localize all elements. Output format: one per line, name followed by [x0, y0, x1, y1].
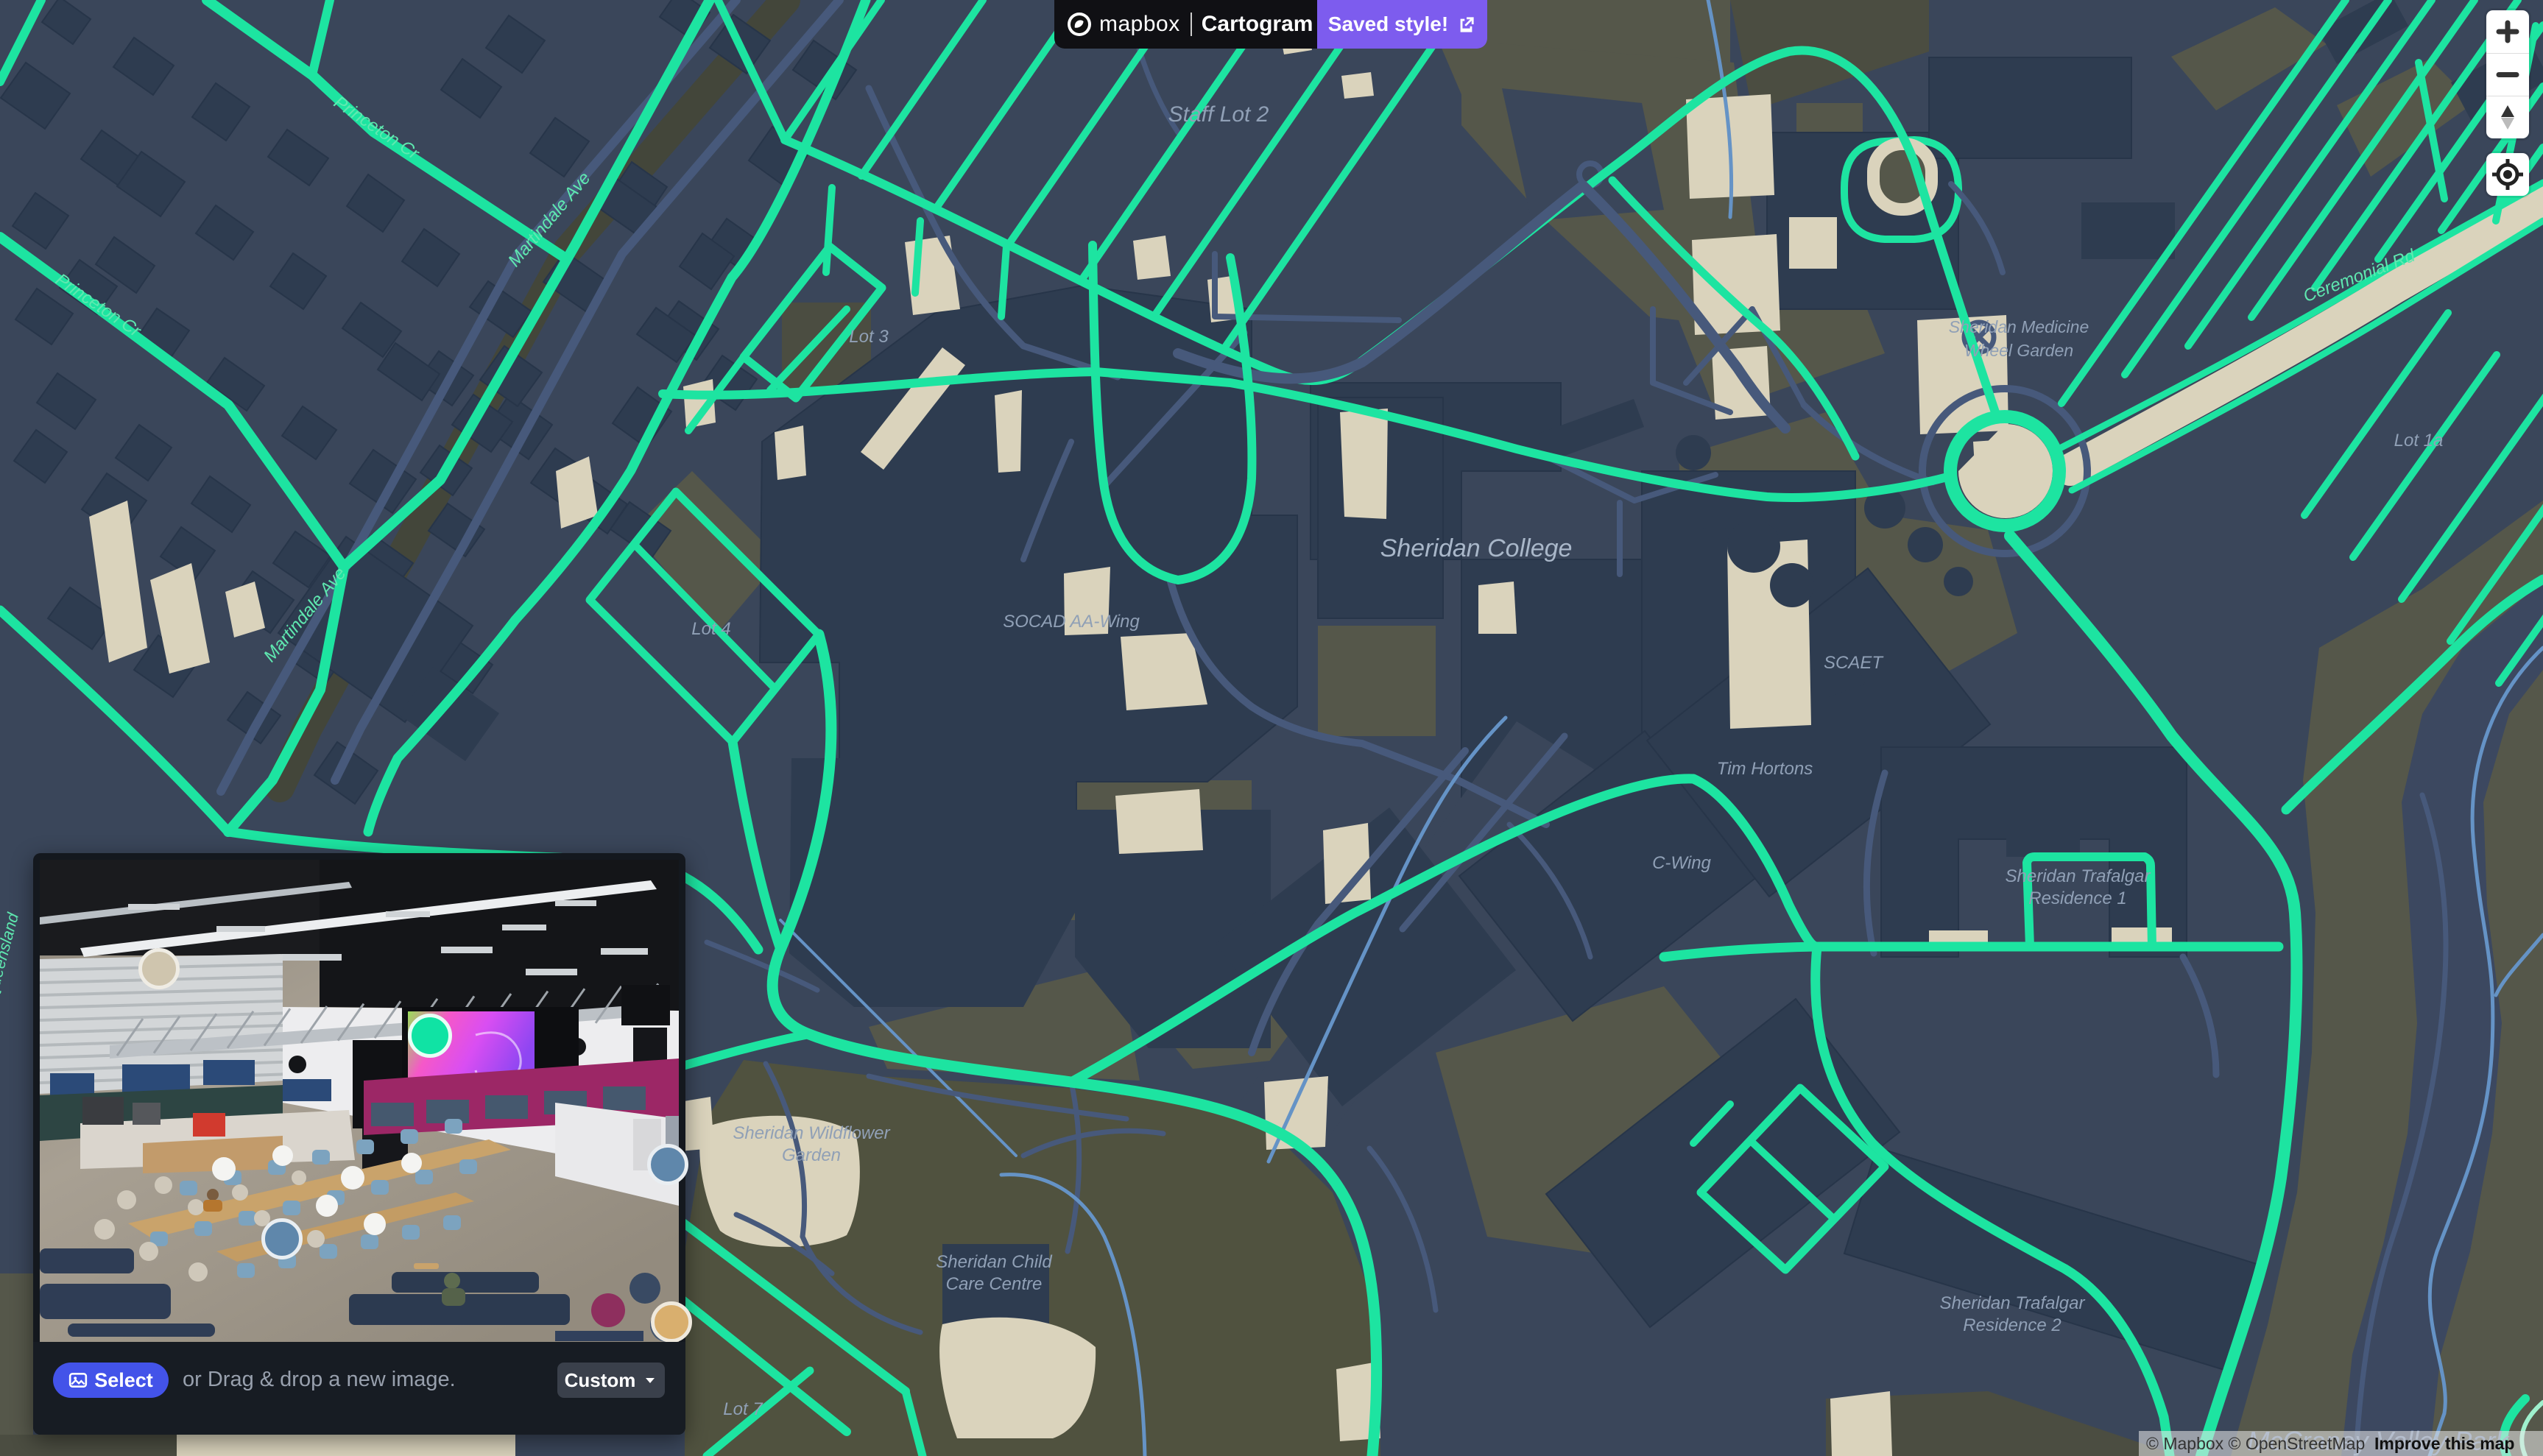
- svg-text:Sheridan Trafalgar: Sheridan Trafalgar: [1940, 1293, 2086, 1313]
- svg-text:Garden: Garden: [782, 1145, 841, 1165]
- svg-text:Care Centre: Care Centre: [946, 1274, 1043, 1294]
- svg-text:Lot 7: Lot 7: [723, 1399, 763, 1419]
- svg-text:Sheridan Child: Sheridan Child: [936, 1252, 1052, 1272]
- svg-text:Lot 4: Lot 4: [691, 619, 730, 639]
- svg-text:SCAET: SCAET: [1824, 653, 1884, 673]
- svg-text:Lot 1a: Lot 1a: [2394, 431, 2444, 450]
- svg-text:Staff Lot 2: Staff Lot 2: [1168, 102, 1269, 127]
- svg-text:Sheridan College: Sheridan College: [1380, 534, 1573, 562]
- svg-text:Residence 2: Residence 2: [1963, 1315, 2061, 1335]
- svg-text:Residence 1: Residence 1: [2028, 888, 2126, 908]
- svg-text:Lot 3: Lot 3: [849, 327, 889, 347]
- svg-text:Tim Hortons: Tim Hortons: [1717, 759, 1813, 779]
- svg-text:Sheridan Trafalgar: Sheridan Trafalgar: [2006, 866, 2151, 886]
- svg-text:SOCAD AA-Wing: SOCAD AA-Wing: [1003, 612, 1140, 632]
- svg-text:Sheridan Medicine: Sheridan Medicine: [1949, 317, 2089, 336]
- svg-text:Sheridan Wildflower: Sheridan Wildflower: [733, 1123, 890, 1143]
- svg-text:Wheel Garden: Wheel Garden: [1964, 341, 2073, 360]
- svg-text:C-Wing: C-Wing: [1652, 853, 1711, 873]
